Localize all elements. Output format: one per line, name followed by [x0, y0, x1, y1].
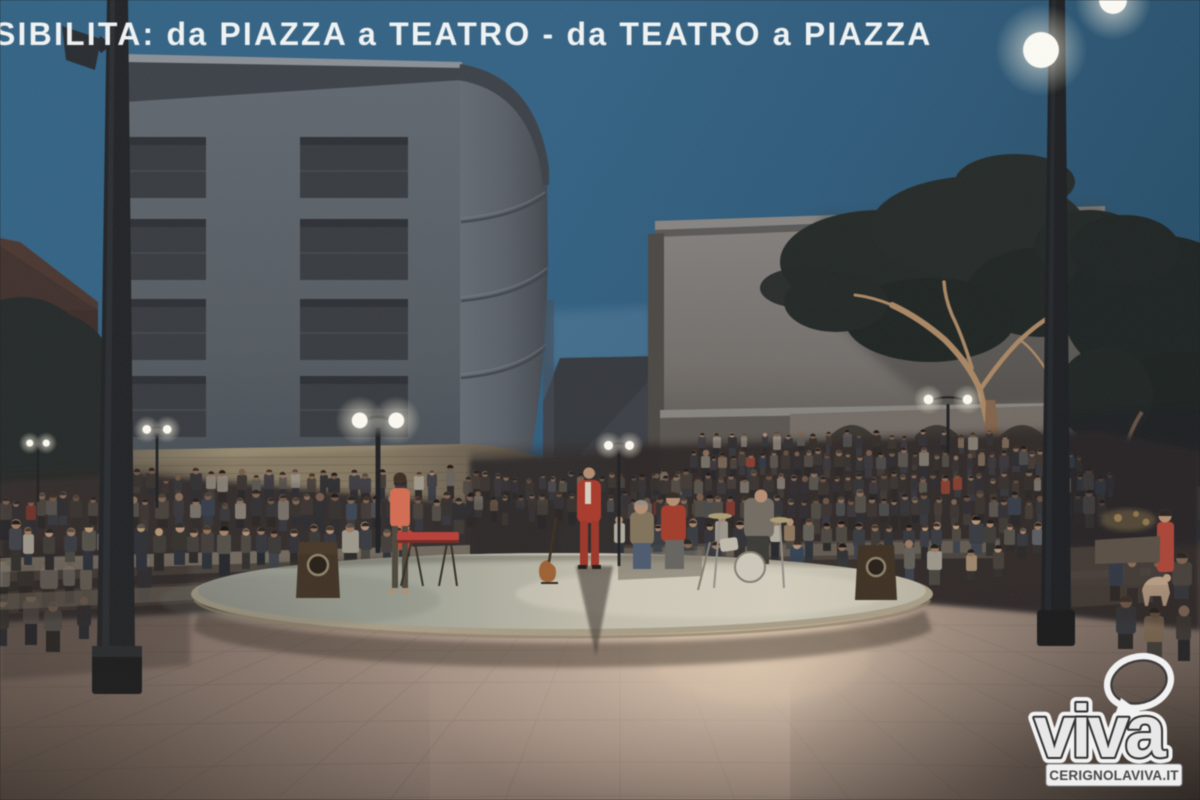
svg-text:CERIGNOLAVIVA.IT: CERIGNOLAVIVA.IT — [1049, 768, 1179, 783]
svg-text:SIBILITA: da PIAZZA a TEATRO -: SIBILITA: da PIAZZA a TEATRO - da TEATRO… — [0, 16, 933, 52]
svg-text:viva: viva — [1034, 690, 1167, 773]
